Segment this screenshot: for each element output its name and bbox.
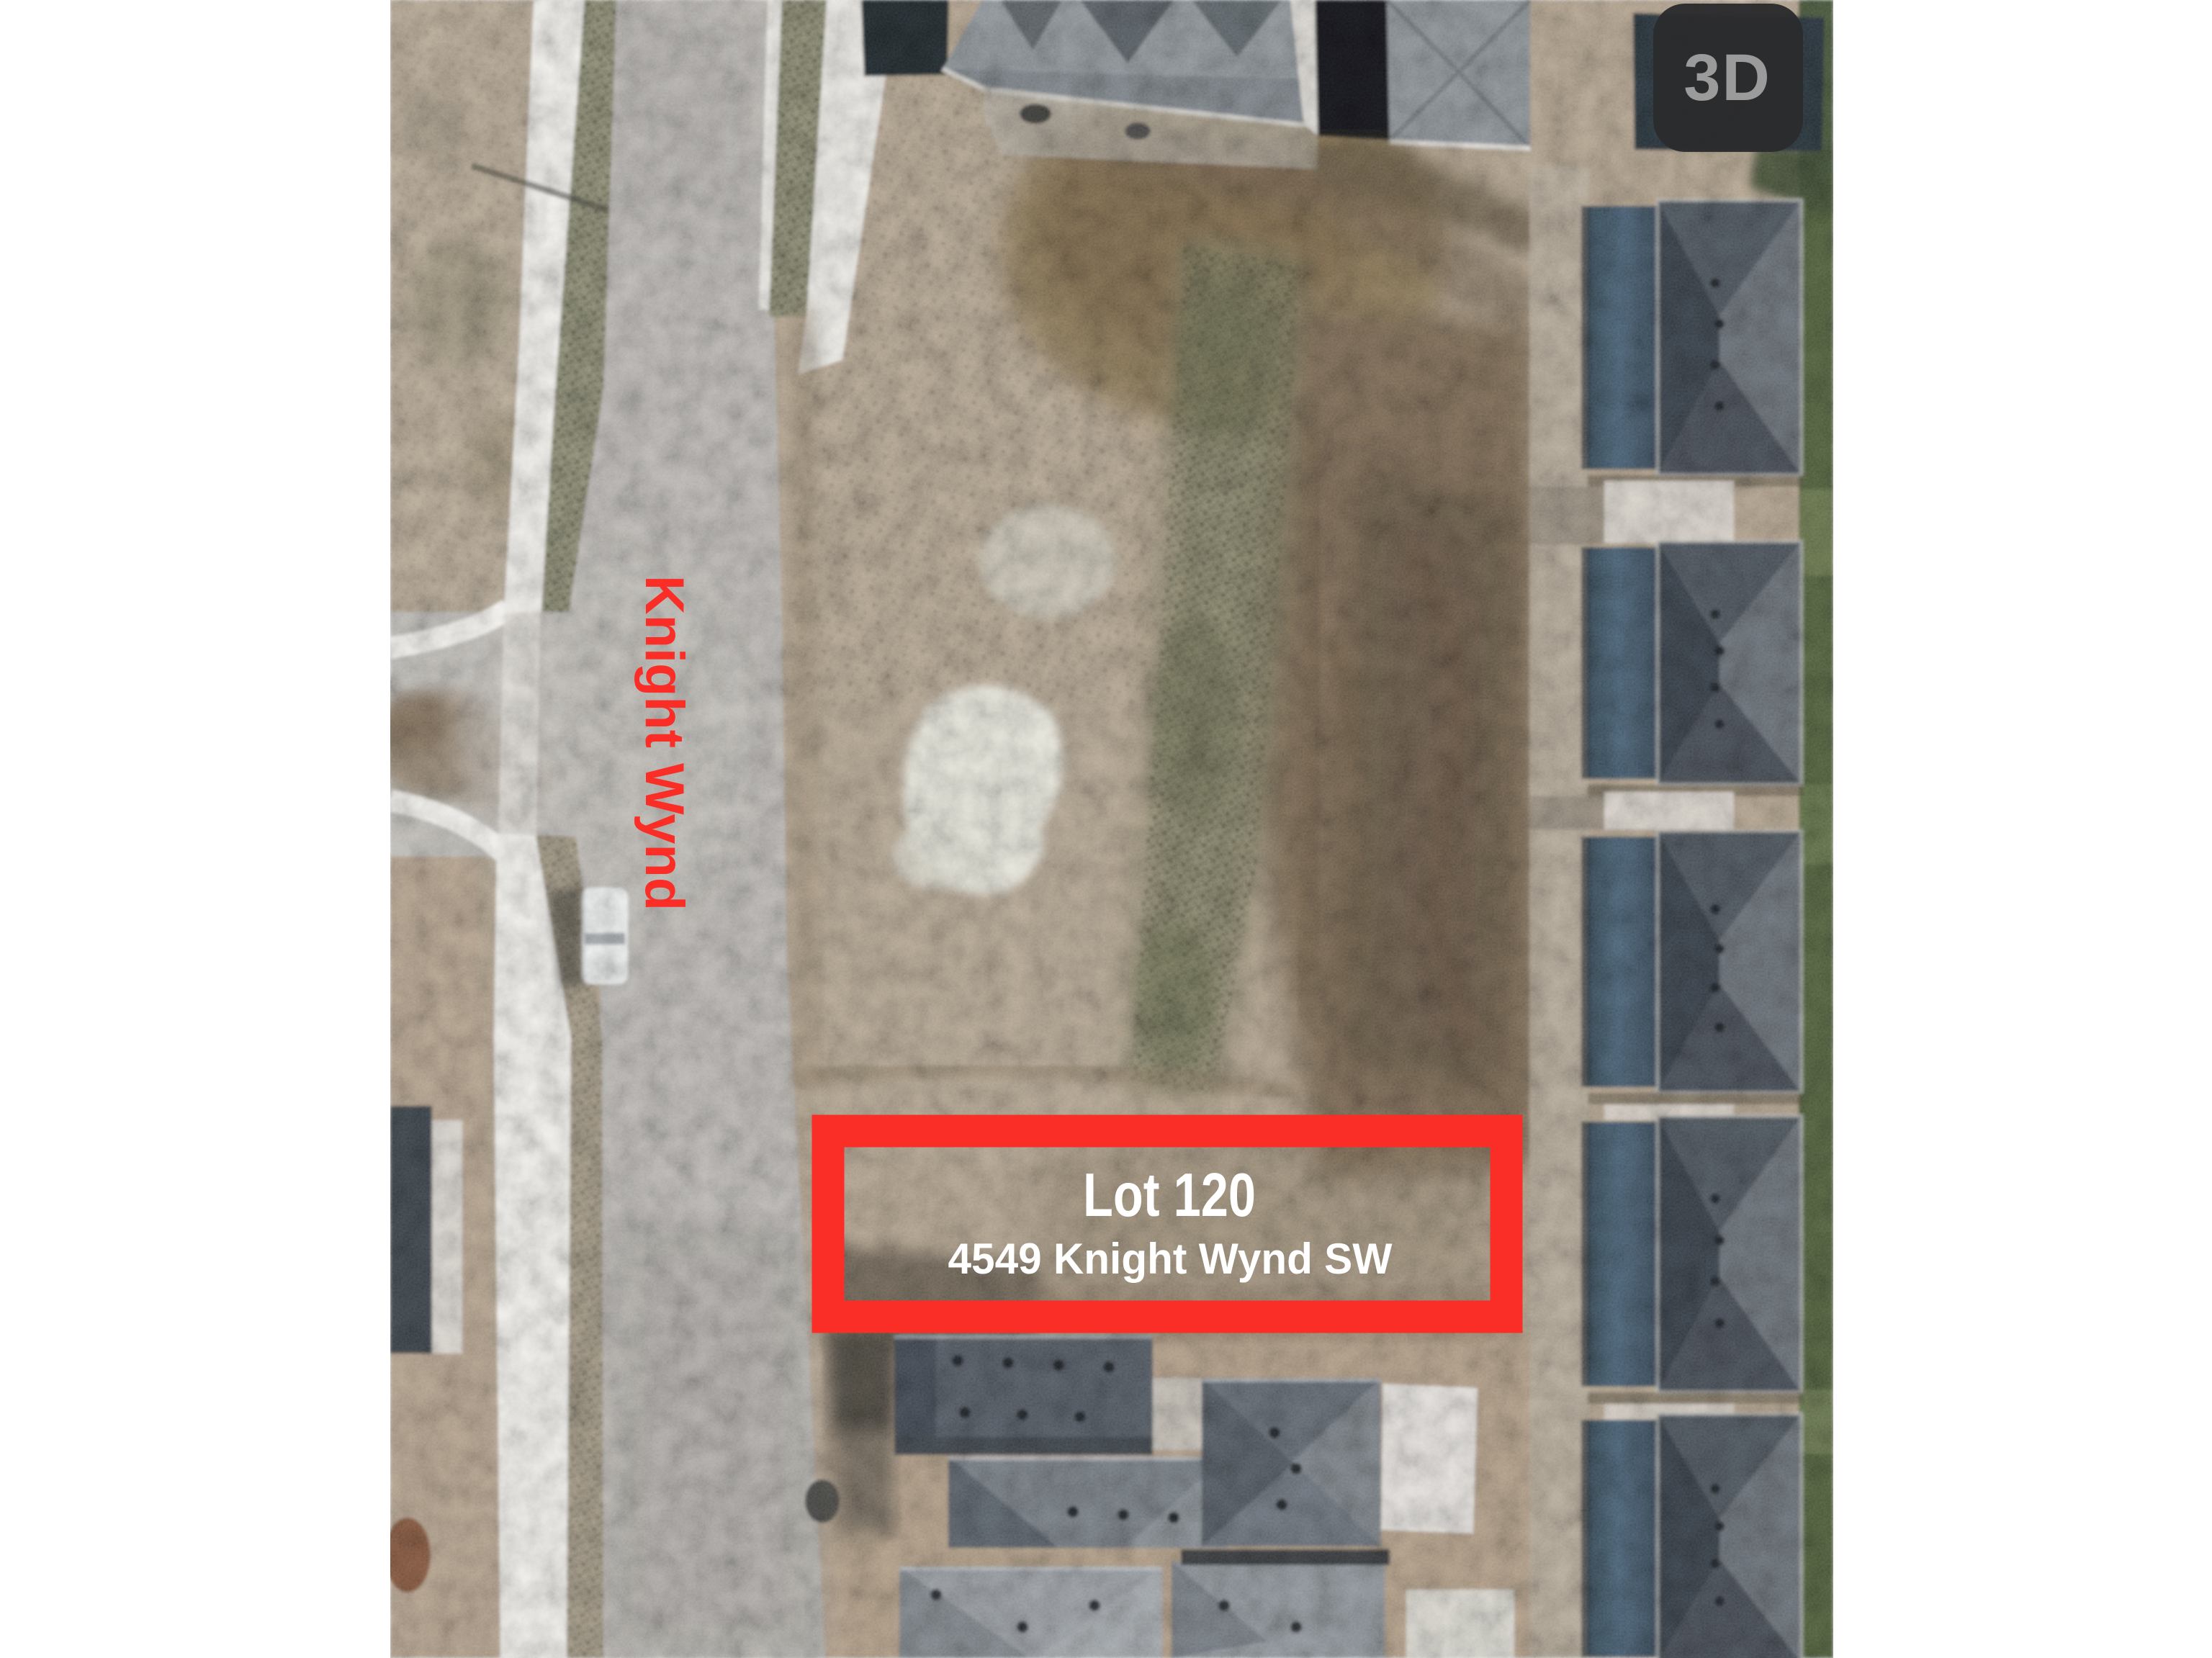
svg-text:Knight Wynd: Knight Wynd	[634, 575, 695, 911]
svg-text:Lot 120: Lot 120	[1083, 1161, 1256, 1230]
svg-text:3D: 3D	[1683, 41, 1771, 114]
svg-text:4549 Knight Wynd SW: 4549 Knight Wynd SW	[948, 1235, 1393, 1283]
